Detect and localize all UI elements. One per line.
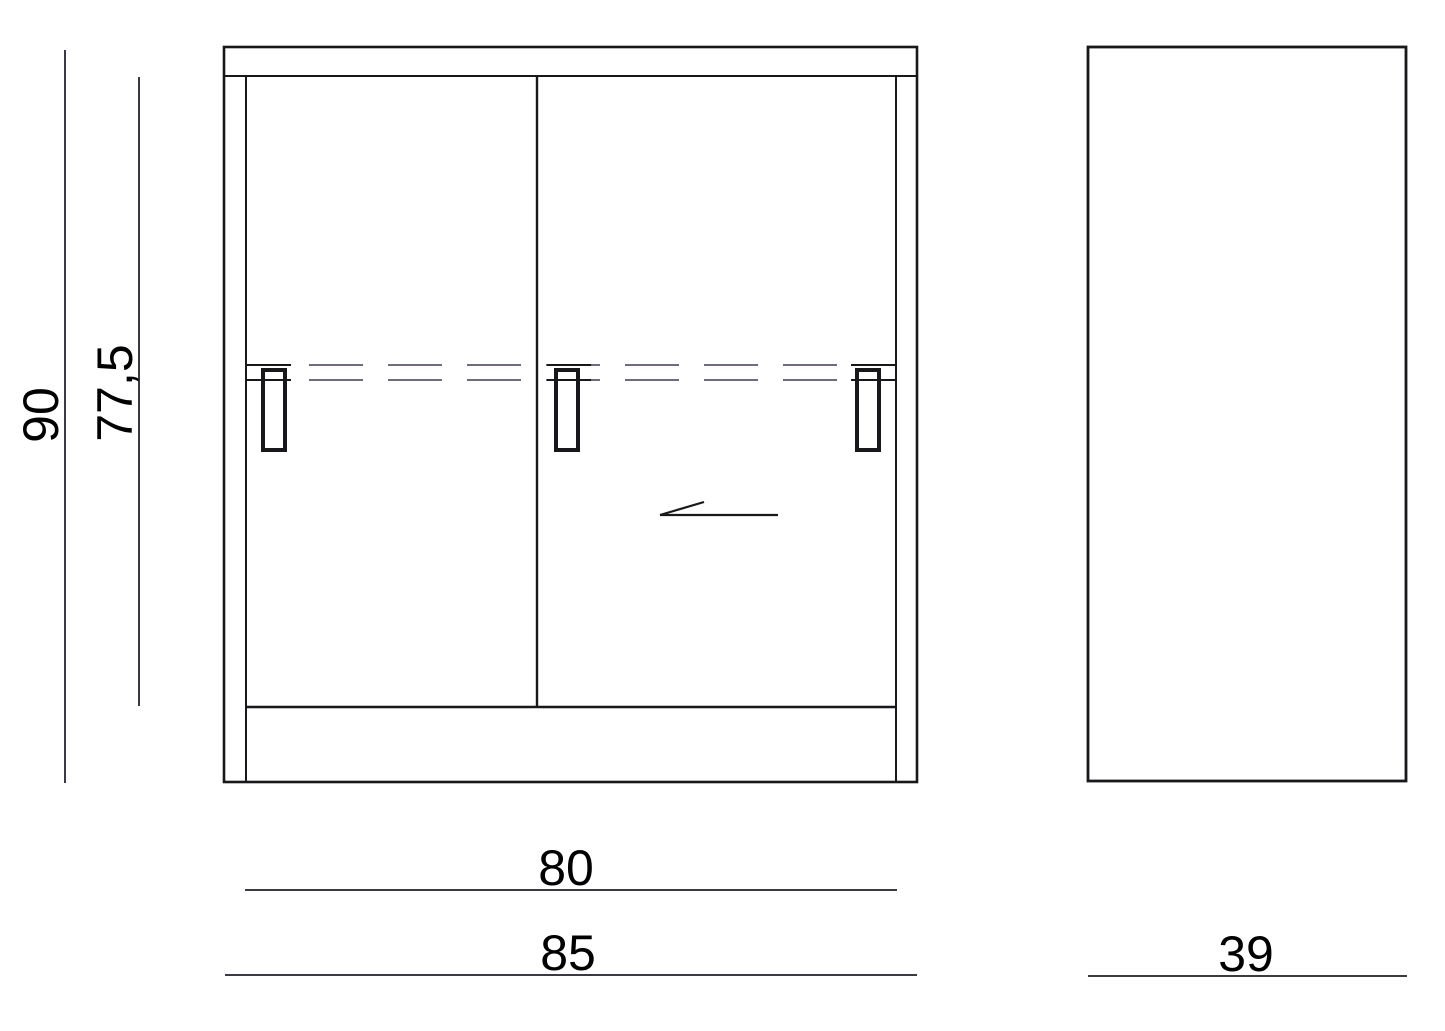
cabinet-outline bbox=[224, 47, 917, 782]
dimension-labels: 90 77,5 80 85 39 bbox=[13, 344, 1274, 982]
door-handle-right bbox=[857, 370, 879, 450]
dimension-label-depth: 39 bbox=[1218, 926, 1274, 982]
front-view bbox=[224, 47, 917, 782]
dimension-label-door-height: 77,5 bbox=[87, 344, 143, 441]
door-handle-middle bbox=[556, 370, 578, 450]
shelf-solid-segments bbox=[246, 365, 896, 380]
dimension-lines bbox=[65, 50, 1407, 976]
side-view bbox=[1088, 47, 1406, 781]
arrow-head-line bbox=[660, 502, 704, 515]
door-handles bbox=[263, 370, 879, 450]
technical-drawing: 90 77,5 80 85 39 bbox=[0, 0, 1445, 1031]
dimension-label-total-height: 90 bbox=[13, 387, 69, 443]
dimension-label-door-width: 80 bbox=[538, 840, 594, 896]
door-handle-left bbox=[263, 370, 285, 450]
drawing-canvas: 90 77,5 80 85 39 bbox=[0, 0, 1445, 1031]
hidden-shelf-lines bbox=[246, 365, 896, 380]
side-view-outline bbox=[1088, 47, 1406, 781]
dimension-label-total-width: 85 bbox=[540, 925, 596, 981]
slide-direction-arrow bbox=[660, 502, 778, 515]
